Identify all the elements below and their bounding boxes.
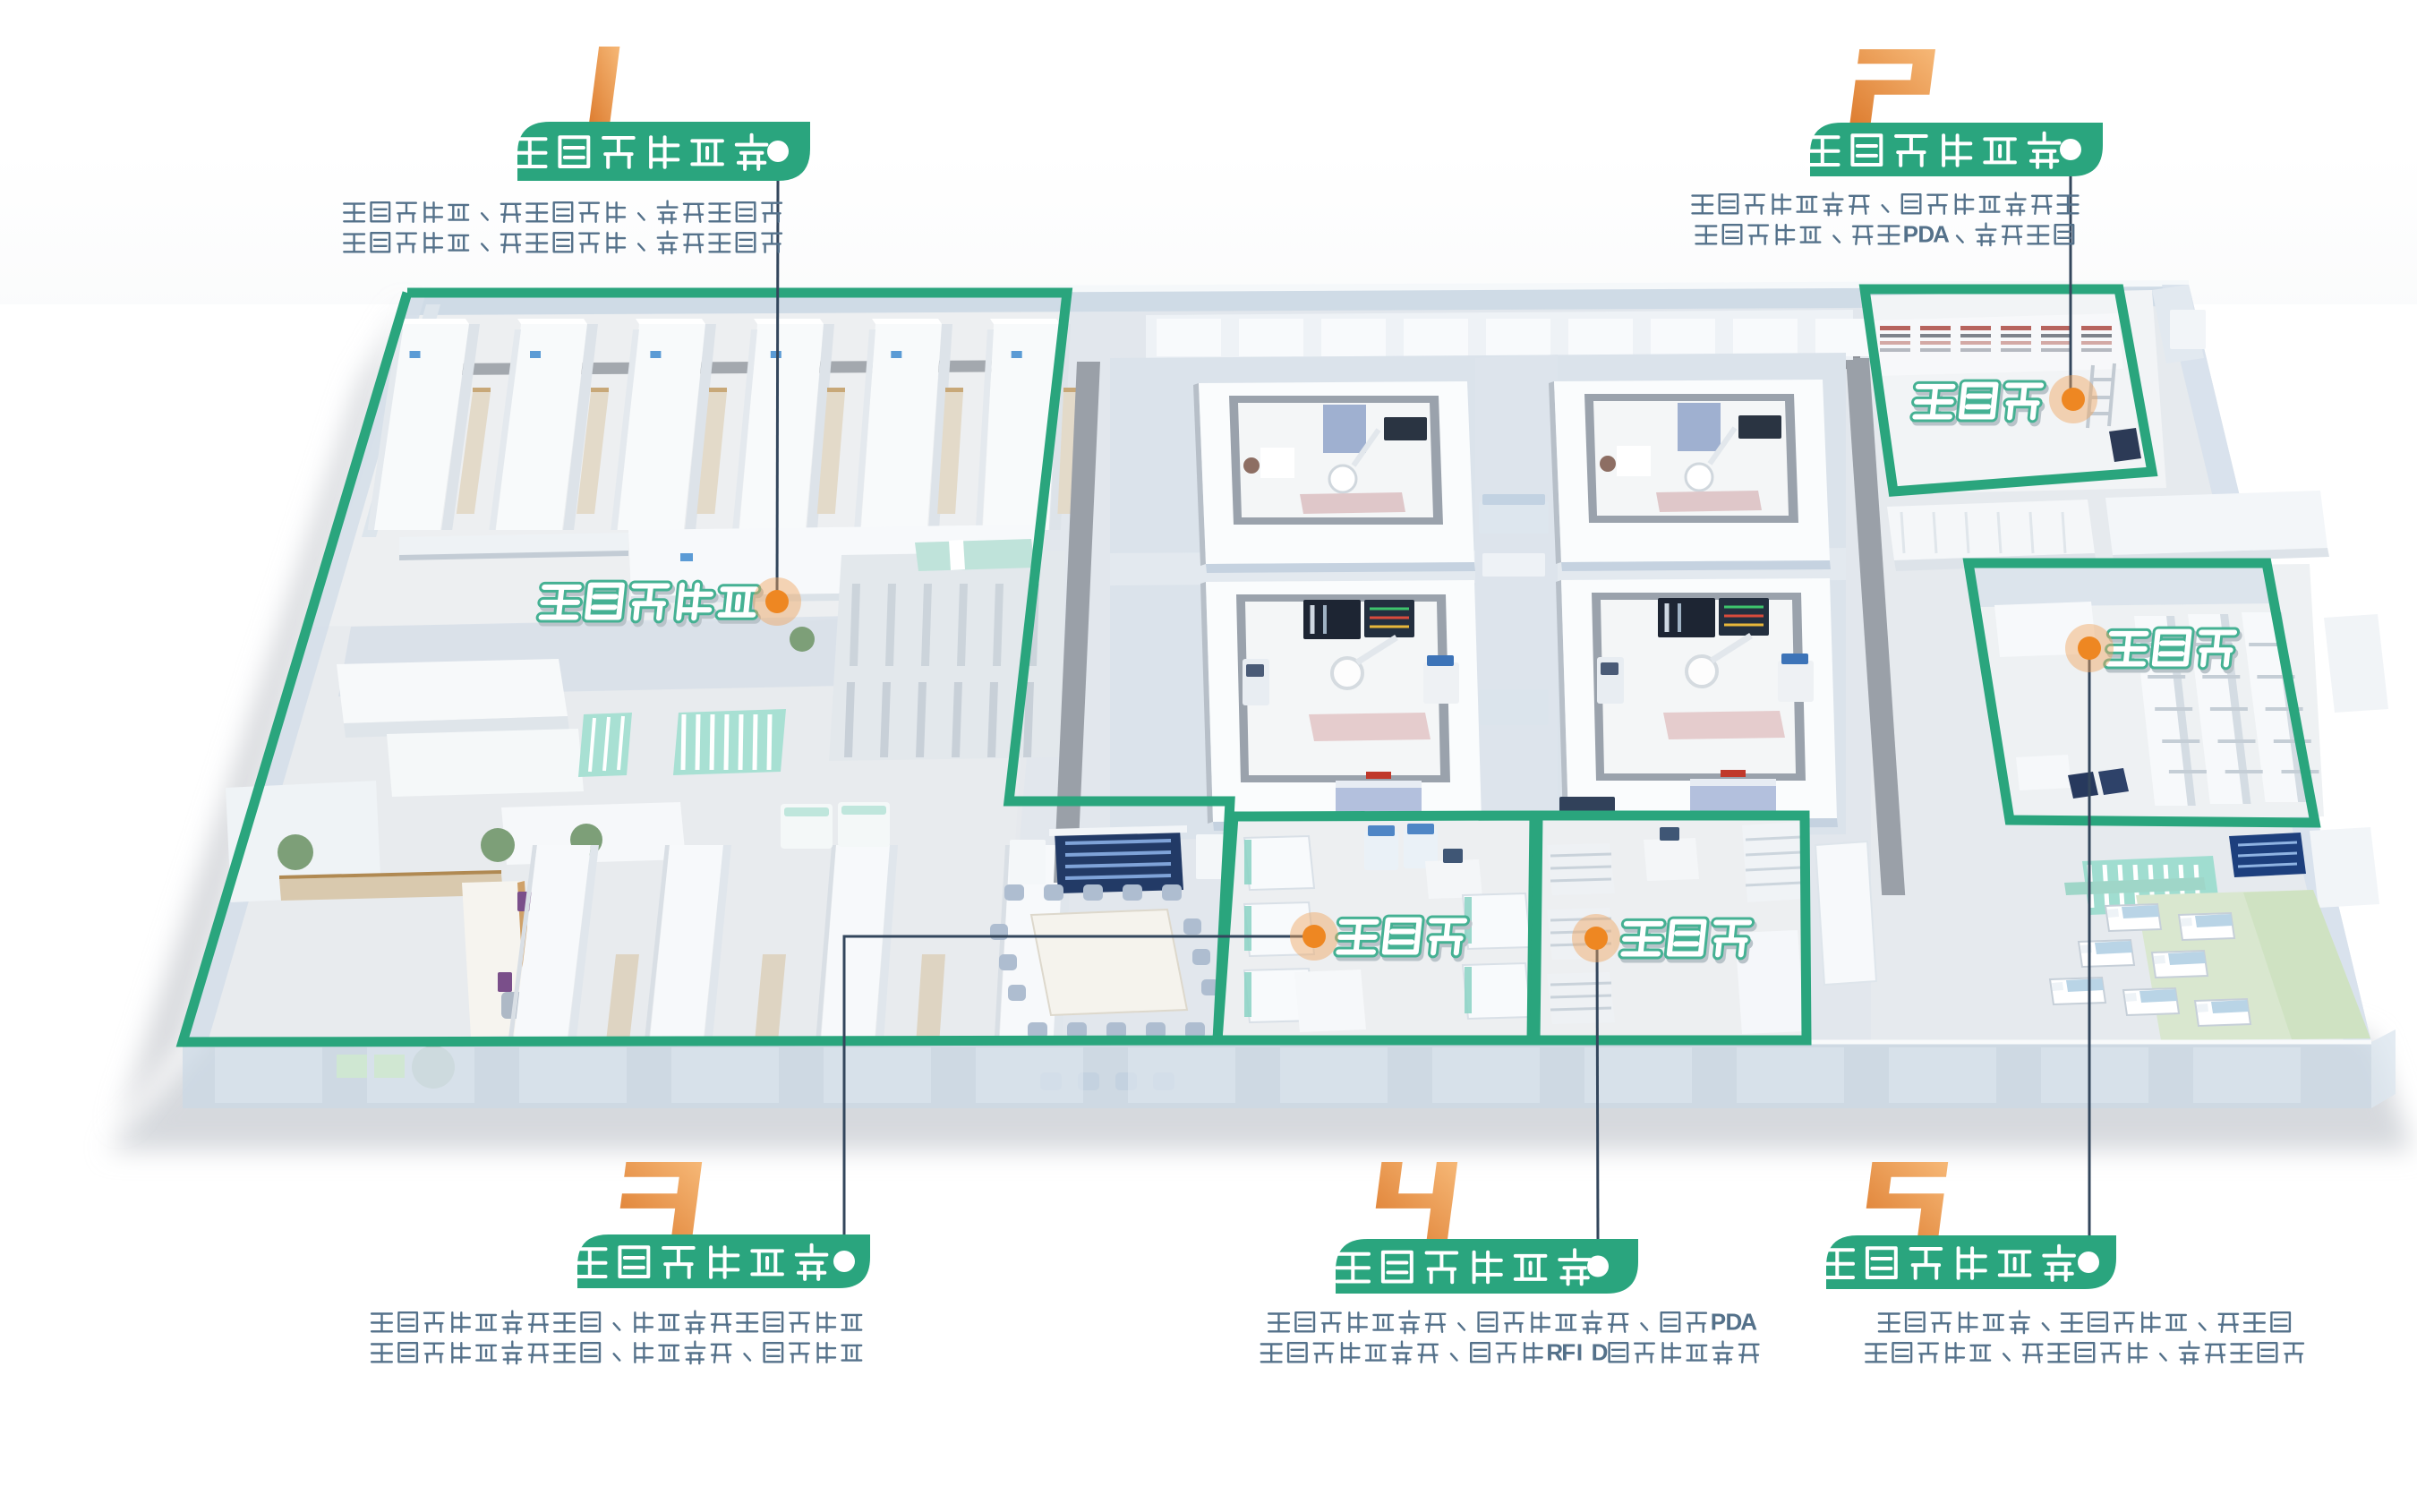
svg-text:F: F: [1561, 1339, 1576, 1366]
svg-text:I: I: [1576, 1339, 1583, 1366]
svg-text:D: D: [1592, 1339, 1609, 1366]
svg-text:A: A: [1933, 221, 1950, 248]
svg-text:A: A: [1740, 1309, 1757, 1336]
svg-text:P: P: [1903, 221, 1918, 248]
svg-text:P: P: [1711, 1309, 1726, 1336]
